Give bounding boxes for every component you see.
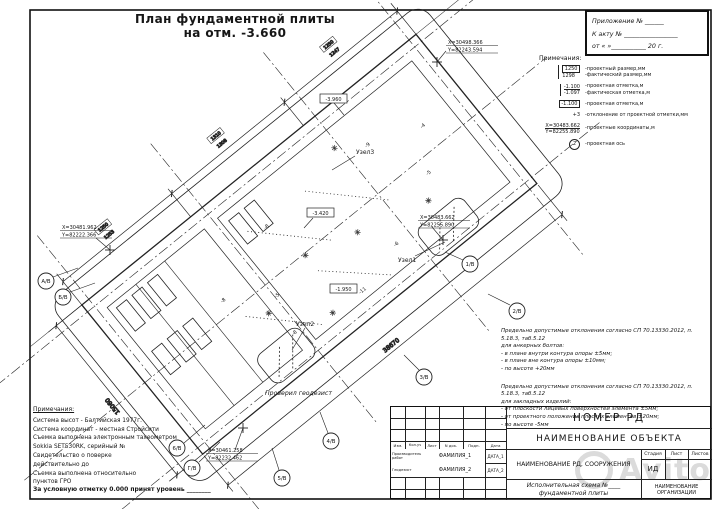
elevation-mark: -3.960 <box>320 94 347 115</box>
legend-coord-y: Y=82255.890 <box>545 128 579 135</box>
legend-coord-desc: -проектные координаты,м <box>585 125 655 132</box>
stamp-date-1: ДАТА_1 <box>485 449 506 463</box>
legend: Примечания: 1250 1298 -проектный размер,… <box>539 55 711 154</box>
stamp-stage-label: Стадия <box>641 449 665 459</box>
stamp-name-2: ФАМИЛИЯ_2 <box>425 463 485 477</box>
survey-note-line: Sokkia SET530RK, серийный № <box>33 443 223 452</box>
inner-zone <box>218 61 510 340</box>
checked-note: Проверил геодезист <box>265 390 332 397</box>
svg-text:2/В: 2/В <box>513 309 522 315</box>
drawing-title-line1: План фундаментной плиты <box>115 12 355 26</box>
survey-note-line: Система высот - Балтийская 1977г. <box>33 417 223 426</box>
svg-text:X=30483.662: X=30483.662 <box>420 215 455 221</box>
svg-text:А/В: А/В <box>41 279 51 285</box>
legend-boxed-mark: -1.100 <box>559 100 580 108</box>
svg-text:-6: -6 <box>393 241 401 249</box>
axis-bubble: 3/В <box>404 355 432 385</box>
svg-text:-5: -5 <box>425 169 433 177</box>
svg-text:1247: 1247 <box>329 46 342 58</box>
tolerance-para1-title1: Предельно допустимые отклонения согласно… <box>501 328 709 343</box>
stamp-date-2: ДАТА_2 <box>485 463 506 477</box>
legend-deviation-symbol: +3 <box>539 112 585 118</box>
legend-boxed-mark-desc: -проектная отметка,м <box>585 101 643 108</box>
svg-text:X=30498.366: X=30498.366 <box>448 40 483 46</box>
tolerance-para1-item: - по высоте +20мм <box>501 366 709 374</box>
drawing-sheet: 38670 15060 1250 1253 1310 1308 1250 124… <box>0 0 720 509</box>
stamp-rd-name: НАИМЕНОВАНИЕ РД, СООРУЖЕНИЯ <box>506 449 641 479</box>
legend-axis-desc: -проектная ось <box>585 141 625 148</box>
legend-mark-desc1: -проектная отметка,м <box>585 83 650 90</box>
stamp-org-name: НАИМЕНОВАНИЕ ОРГАНИЗАЦИИ <box>641 479 712 500</box>
svg-text:X=30481.962: X=30481.962 <box>62 225 97 231</box>
dotted-rows <box>205 150 427 364</box>
svg-text:Узел1: Узел1 <box>398 257 416 264</box>
legend-size-bottom: 1298 <box>562 73 575 79</box>
stamp-sheets-label: Листов <box>688 449 712 459</box>
appendix-line3: от « »___________ 20 г. <box>592 41 702 54</box>
tolerance-para1-item: - в плане вне контура опоры ±10мм; <box>501 358 709 366</box>
stamp-col-list: Лист <box>425 441 439 449</box>
svg-text:1250: 1250 <box>323 39 336 51</box>
anchor-bolt-groups <box>116 198 306 375</box>
svg-text:1310: 1310 <box>210 130 223 142</box>
survey-notes-heading: Примечания: <box>33 406 223 415</box>
datum-note: За условную отметку 0.000 принят уровень… <box>33 486 211 493</box>
svg-text:1250: 1250 <box>97 222 110 234</box>
legend-item-size: 1250 1298 -проектный размер,мм -фактичес… <box>539 65 711 79</box>
legend-mark-desc2: -фактическая отметка,м <box>585 90 650 97</box>
coordinate-label: X=30498.366 Y=82243.594 <box>437 40 498 62</box>
survey-note-line: Свидетельство о поверке <box>33 452 223 461</box>
stamp-doc-number: НОМЕР РД <box>506 407 712 428</box>
svg-text:-5: -5 <box>273 292 281 300</box>
survey-point-icons <box>210 119 450 349</box>
svg-text:-8: -8 <box>220 297 228 305</box>
legend-item-axis: 2 -проектная ось <box>539 139 711 150</box>
stamp-col-data: Дата <box>485 441 506 449</box>
svg-text:Y=82243.594: Y=82243.594 <box>447 48 482 54</box>
stamp-scheme-line2: фундаментной плиты <box>539 490 608 498</box>
stamp-scheme-name: Исполнительная схема №____ фундаментной … <box>506 479 641 500</box>
svg-text:3/В: 3/В <box>420 375 429 381</box>
tolerance-para1-item: - в плане внутри контура опоры ±5мм; <box>501 351 709 359</box>
legend-item-mark: -1.100 -1.097 -проектная отметка,м -факт… <box>539 83 711 96</box>
legend-deviation-desc: -отклонение от проектной отметки,мм <box>585 112 688 119</box>
stamp-stage-value: ИД <box>641 459 665 479</box>
svg-text:1308: 1308 <box>216 138 229 150</box>
survey-note-line: Съемка выполнена электронным тахеометром <box>33 434 223 443</box>
svg-text:1/В: 1/В <box>466 262 475 268</box>
svg-text:Y=82255.890: Y=82255.890 <box>419 223 454 229</box>
svg-text:-3.420: -3.420 <box>312 211 328 217</box>
legend-item-boxed-mark: -1.100 -проектная отметка,м <box>539 100 711 108</box>
legend-mark-bottom: -1.097 <box>564 89 580 96</box>
stamp-col-koluch: Кол.уч <box>405 441 425 449</box>
survey-note-line: Система координат - местная Стройсити <box>33 426 223 435</box>
tolerance-para1-title2: для анкерных болтов: <box>501 343 709 351</box>
appendix-line1: Приложение № ______ <box>592 16 702 29</box>
axis-bubble: 2/В <box>488 294 525 319</box>
survey-note-line: Съемка выполнена относительно <box>33 470 223 479</box>
stamp-scheme-line1: Исполнительная схема №____ <box>527 482 621 490</box>
stamp-col-ndok: N док. <box>439 441 463 449</box>
survey-notes: Примечания: Система высот - Балтийская 1… <box>33 406 223 487</box>
svg-text:5/В: 5/В <box>278 476 287 482</box>
coordinate-label: X=30483.662 Y=82255.890 <box>418 215 470 240</box>
axis-bubble: Б/В <box>55 283 95 305</box>
svg-text:Y=82222.366: Y=82222.366 <box>61 233 96 239</box>
axis-bubble: 5/В <box>272 448 290 486</box>
survey-note-line: действительно до <box>33 461 223 470</box>
svg-text:4/В: 4/В <box>327 439 336 445</box>
detail-callout: Узел3 <box>332 149 374 170</box>
svg-text:-11: -11 <box>358 286 368 296</box>
axis-bubble: 1/В <box>445 252 478 272</box>
title-block: Изм. Кол.уч Лист N док. Подп. Дата Произ… <box>390 406 711 499</box>
legend-axis-symbol: 2 <box>569 139 580 150</box>
appendix-box: Приложение № ______ К акту № ___________… <box>585 10 709 56</box>
stamp-col-podp: Подп. <box>463 441 485 449</box>
axis-bubble: 4/В <box>320 412 339 449</box>
legend-item-deviation: +3 -отклонение от проектной отметки,мм <box>539 112 711 119</box>
stamp-role-2: Геодезист <box>391 463 425 477</box>
axis-bubble: А/В <box>38 268 78 289</box>
size-pair-labels: 1250 1253 1310 1308 1250 1247 <box>94 36 343 242</box>
svg-text:-8: -8 <box>291 329 299 337</box>
legend-item-coords: X=30483.662 Y=82255.890 -проектные коорд… <box>539 123 711 135</box>
svg-text:-4: -4 <box>419 123 427 131</box>
stamp-sheet-label: Лист <box>665 449 688 459</box>
svg-text:Б/В: Б/В <box>58 295 68 301</box>
svg-text:-8: -8 <box>263 223 271 231</box>
legend-size-top: 1250 <box>562 65 580 73</box>
svg-text:Узел3: Узел3 <box>356 149 374 156</box>
stamp-col-izm: Изм. <box>391 441 405 449</box>
inner-zone-left <box>107 229 302 429</box>
drawing-title-line2: на отм. -3.660 <box>115 26 355 40</box>
stamp-object-name: НАИМЕНОВАНИЕ ОБЪЕКТА <box>506 428 712 449</box>
stamp-role-1: Производитель работ <box>391 449 425 463</box>
dimension-value: 38670 <box>382 337 401 355</box>
svg-text:Узел2: Узел2 <box>296 321 314 328</box>
legend-size-desc2: -фактический размер,мм <box>585 72 651 79</box>
appendix-line2: К акту № _________________ <box>592 29 702 42</box>
legend-heading: Примечания: <box>539 55 711 62</box>
stamp-name-1: ФАМИЛИЯ_1 <box>425 449 485 463</box>
tolerance-para2-title1: Предельно допустимые отклонения согласно… <box>501 384 709 399</box>
drawing-title: План фундаментной плиты на отм. -3.660 <box>115 12 355 40</box>
svg-text:-3.960: -3.960 <box>325 97 341 103</box>
svg-text:-1.950: -1.950 <box>335 287 351 293</box>
elevation-mark: -1.950 <box>330 284 357 293</box>
